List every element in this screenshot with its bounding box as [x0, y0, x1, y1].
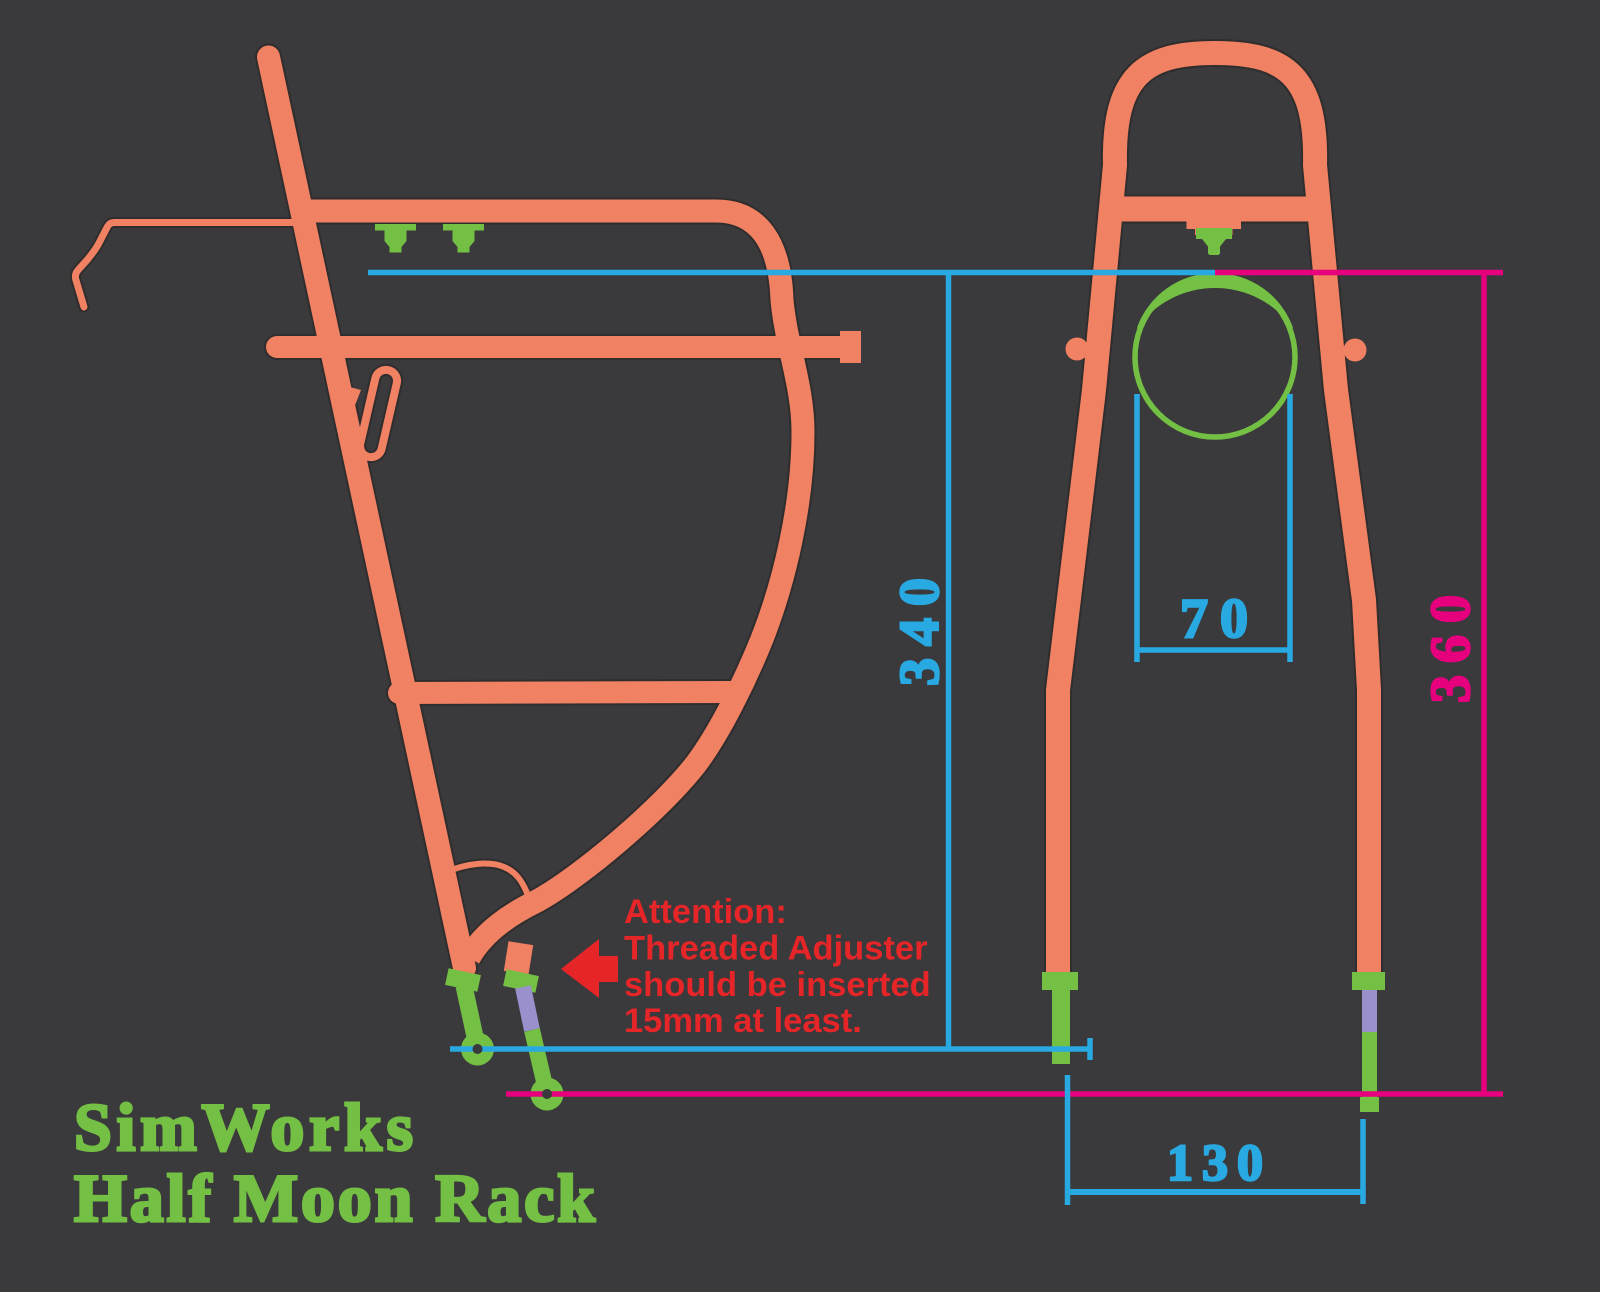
- svg-text:Threaded Adjuster: Threaded Adjuster: [624, 930, 928, 968]
- svg-text:340: 340: [889, 578, 951, 686]
- svg-text:15mm at least.: 15mm at least.: [624, 1002, 862, 1040]
- svg-text:360: 360: [1420, 595, 1482, 703]
- svg-text:Attention:: Attention:: [624, 893, 787, 931]
- svg-text:should be inserted: should be inserted: [624, 966, 931, 1004]
- svg-text:130: 130: [1167, 1135, 1263, 1192]
- svg-text:SimWorks: SimWorks: [74, 1089, 413, 1165]
- svg-text:Half Moon Rack: Half Moon Rack: [74, 1160, 595, 1236]
